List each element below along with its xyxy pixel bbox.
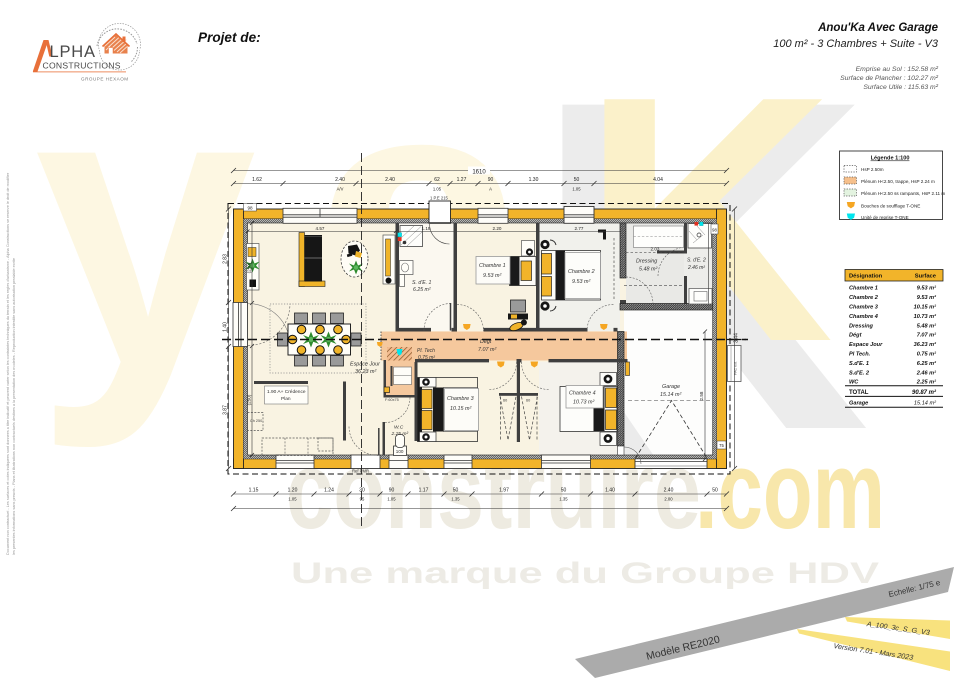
svg-text:Surface de Plancher : 102.27 m: Surface de Plancher : 102.27 m² [840, 75, 939, 82]
svg-text:1.27: 1.27 [457, 177, 467, 183]
svg-text:Surface: Surface [915, 274, 937, 280]
svg-text:1.05: 1.05 [288, 497, 297, 502]
svg-text:A/V: A/V [337, 187, 344, 192]
svg-text:10.15 m²: 10.15 m² [450, 406, 471, 412]
svg-text:36.23 m²: 36.23 m² [914, 341, 937, 348]
svg-text:2.25 m²: 2.25 m² [916, 379, 936, 386]
svg-text:1.17: 1.17 [419, 488, 429, 494]
svg-text:0.75 m²: 0.75 m² [917, 351, 936, 358]
svg-text:15.14 m²: 15.14 m² [914, 401, 937, 407]
svg-text:Chambre 4: Chambre 4 [849, 314, 879, 320]
svg-text:(250): (250) [247, 262, 252, 273]
svg-text:S. d'E. 2: S. d'E. 2 [687, 258, 706, 264]
svg-text:4.57: 4.57 [316, 226, 325, 231]
svg-text:Pl. Tech: Pl. Tech [417, 348, 435, 354]
svg-text:7.07 m²: 7.07 m² [917, 332, 936, 339]
svg-text:A: A [489, 187, 492, 192]
svg-text:1.90 A+ Crédence: 1.90 A+ Crédence [267, 389, 306, 395]
svg-text:1.05: 1.05 [433, 187, 442, 192]
svg-text:Garage: Garage [849, 401, 868, 407]
svg-text:50: 50 [712, 488, 718, 494]
svg-text:Chambre 3: Chambre 3 [849, 305, 879, 311]
svg-text:6.25 m²: 6.25 m² [413, 287, 431, 293]
svg-text:0.75 m²: 0.75 m² [418, 355, 435, 361]
svg-text:Unité de reprise T-ONE: Unité de reprise T-ONE [861, 215, 909, 220]
svg-text:S.d'E. 1: S.d'E. 1 [849, 361, 869, 367]
svg-text:90.87 m²: 90.87 m² [912, 389, 937, 396]
svg-text:10.15 m²: 10.15 m² [914, 304, 937, 311]
svg-text:2.83: 2.83 [223, 254, 229, 264]
svg-text:Chambre 1: Chambre 1 [849, 286, 878, 292]
svg-text:2.40: 2.40 [335, 177, 345, 183]
svg-text:Légende 1:100: Légende 1:100 [871, 156, 910, 162]
svg-text:2.20: 2.20 [493, 226, 502, 231]
svg-text:1.35: 1.35 [451, 497, 460, 502]
svg-text:S. d'E. 1: S. d'E. 1 [412, 280, 432, 286]
svg-text:1 P.E 215: 1 P.E 215 [430, 196, 449, 201]
svg-text:HsP 2.50m: HsP 2.50m [861, 167, 884, 172]
svg-text:2.40: 2.40 [664, 488, 674, 494]
svg-text:Dressing: Dressing [849, 323, 874, 329]
svg-text:50: 50 [574, 177, 580, 183]
svg-text:Anou'Ka Avec Garage: Anou'Ka Avec Garage [817, 22, 939, 34]
svg-text:15.14 m²: 15.14 m² [660, 392, 681, 398]
svg-text:100 m² - 3 Chambres + Suite -: 100 m² - 3 Chambres + Suite - V3 [773, 38, 939, 50]
svg-text:1.62: 1.62 [252, 177, 262, 183]
svg-text:1.40: 1.40 [605, 488, 615, 494]
svg-text:1.30: 1.30 [529, 177, 539, 183]
svg-text:50: 50 [453, 488, 459, 494]
svg-text:GROUPE HEXAOM: GROUPE HEXAOM [81, 77, 129, 82]
svg-text:10.73 m²: 10.73 m² [914, 313, 937, 320]
svg-text:6.25 m²: 6.25 m² [917, 360, 936, 367]
svg-text:2.03: 2.03 [651, 247, 660, 252]
svg-text:3.44: 3.44 [734, 333, 740, 343]
svg-text:Dégt: Dégt [849, 333, 863, 339]
svg-text:(250): (250) [247, 394, 252, 405]
svg-text:Document non contractuel - Les: Document non contractuel - Les surfaces … [6, 172, 10, 555]
svg-text:PAC ext.: PAC ext. [734, 361, 738, 375]
svg-text:Bouches de soufflage T-ONE: Bouches de soufflage T-ONE [861, 204, 920, 209]
svg-text:Plan: Plan [281, 396, 291, 402]
svg-text:Espace Jour: Espace Jour [350, 362, 380, 368]
svg-text:9.53 m²: 9.53 m² [917, 285, 936, 292]
svg-text:98: 98 [247, 206, 253, 211]
svg-text:2.77: 2.77 [575, 226, 584, 231]
svg-text:62: 62 [434, 177, 440, 183]
svg-text:Emprise au Sol : 152.58 m²: Emprise au Sol : 152.58 m² [856, 66, 939, 73]
svg-text:1.35: 1.35 [559, 497, 568, 502]
svg-text:Une marque du Groupe HDV: Une marque du Groupe HDV [291, 557, 879, 590]
svg-text:Chambre 2: Chambre 2 [849, 295, 879, 301]
svg-text:2.00: 2.00 [664, 497, 673, 502]
svg-text:2.40: 2.40 [385, 177, 395, 183]
svg-text:9.53 m²: 9.53 m² [917, 294, 936, 301]
svg-text:60: 60 [503, 399, 507, 403]
svg-text:Surface Utile : 115.63 m²: Surface Utile : 115.63 m² [863, 84, 938, 91]
svg-text:1.05: 1.05 [387, 497, 396, 502]
svg-text:1.19: 1.19 [422, 226, 431, 231]
svg-text:Chambre 1: Chambre 1 [479, 263, 506, 269]
svg-text:Espace Jour: Espace Jour [849, 342, 883, 348]
svg-text:90: 90 [488, 177, 494, 183]
svg-text:1.40: 1.40 [223, 322, 229, 332]
svg-text:1610: 1610 [472, 170, 486, 176]
svg-text:TOTAL: TOTAL [849, 390, 869, 396]
svg-text:1.15: 1.15 [249, 488, 259, 494]
svg-text:Projet de:: Projet de: [198, 30, 261, 45]
svg-text:1.20: 1.20 [288, 488, 298, 494]
svg-text:60: 60 [526, 399, 530, 403]
svg-text:Pl Tech.: Pl Tech. [849, 352, 871, 358]
svg-text:5.48 m²: 5.48 m² [639, 267, 657, 273]
svg-text:Plénum H<2.50, trappe, HsP 2.2: Plénum H<2.50, trappe, HsP 2.24 m [861, 179, 935, 184]
svg-text:9.53 m²: 9.53 m² [483, 273, 501, 279]
svg-text:Chambre 4: Chambre 4 [569, 391, 596, 397]
svg-text:CONSTRUCTIONS: CONSTRUCTIONS [43, 61, 121, 71]
svg-text:Chambre 2: Chambre 2 [568, 269, 595, 275]
svg-text:Chambre 3: Chambre 3 [447, 396, 474, 402]
svg-text:Ref PMR: Ref PMR [352, 469, 369, 474]
svg-text:F:60x75: F:60x75 [385, 398, 399, 402]
svg-text:90: 90 [389, 488, 395, 494]
svg-text:1.24: 1.24 [324, 488, 334, 494]
svg-text:100: 100 [396, 449, 404, 454]
svg-text:2.46 m²: 2.46 m² [916, 369, 936, 376]
svg-text:S.d'E. 2: S.d'E. 2 [849, 370, 870, 376]
svg-text:50: 50 [561, 488, 567, 494]
svg-text:98: 98 [712, 228, 717, 233]
svg-text:LPHA: LPHA [50, 43, 96, 61]
svg-text:36.23 m²: 36.23 m² [355, 369, 376, 375]
svg-text:W.C: W.C [394, 425, 404, 431]
svg-text:Plénum H<2.50 ss rampants, HsP: Plénum H<2.50 ss rampants, HsP 2.11 m [861, 191, 945, 196]
svg-text:5.48 m²: 5.48 m² [917, 322, 936, 329]
svg-text:Dressing: Dressing [636, 259, 657, 265]
svg-text:10.73 m²: 10.73 m² [573, 400, 594, 406]
svg-text:95: 95 [360, 497, 365, 502]
svg-text:2.46 m²: 2.46 m² [687, 265, 705, 271]
svg-text:7.07 m²: 7.07 m² [478, 347, 496, 353]
svg-text:Désignation: Désignation [849, 274, 883, 280]
svg-text:Garage: Garage [662, 384, 680, 390]
svg-text:4.04: 4.04 [653, 177, 663, 183]
svg-text:les presentes informations san: les presentes informations sans preavis … [12, 258, 16, 555]
svg-text:3.87: 3.87 [223, 405, 229, 415]
svg-text:9.53 m²: 9.53 m² [572, 279, 590, 285]
svg-text:1.05: 1.05 [572, 187, 581, 192]
svg-text:2.25 m²: 2.25 m² [391, 431, 409, 437]
svg-text:1.97: 1.97 [499, 488, 509, 494]
svg-text:2.58: 2.58 [699, 391, 704, 400]
svg-text:WC: WC [849, 380, 859, 386]
svg-text:30: 30 [359, 488, 365, 494]
svg-text:75: 75 [719, 443, 724, 448]
